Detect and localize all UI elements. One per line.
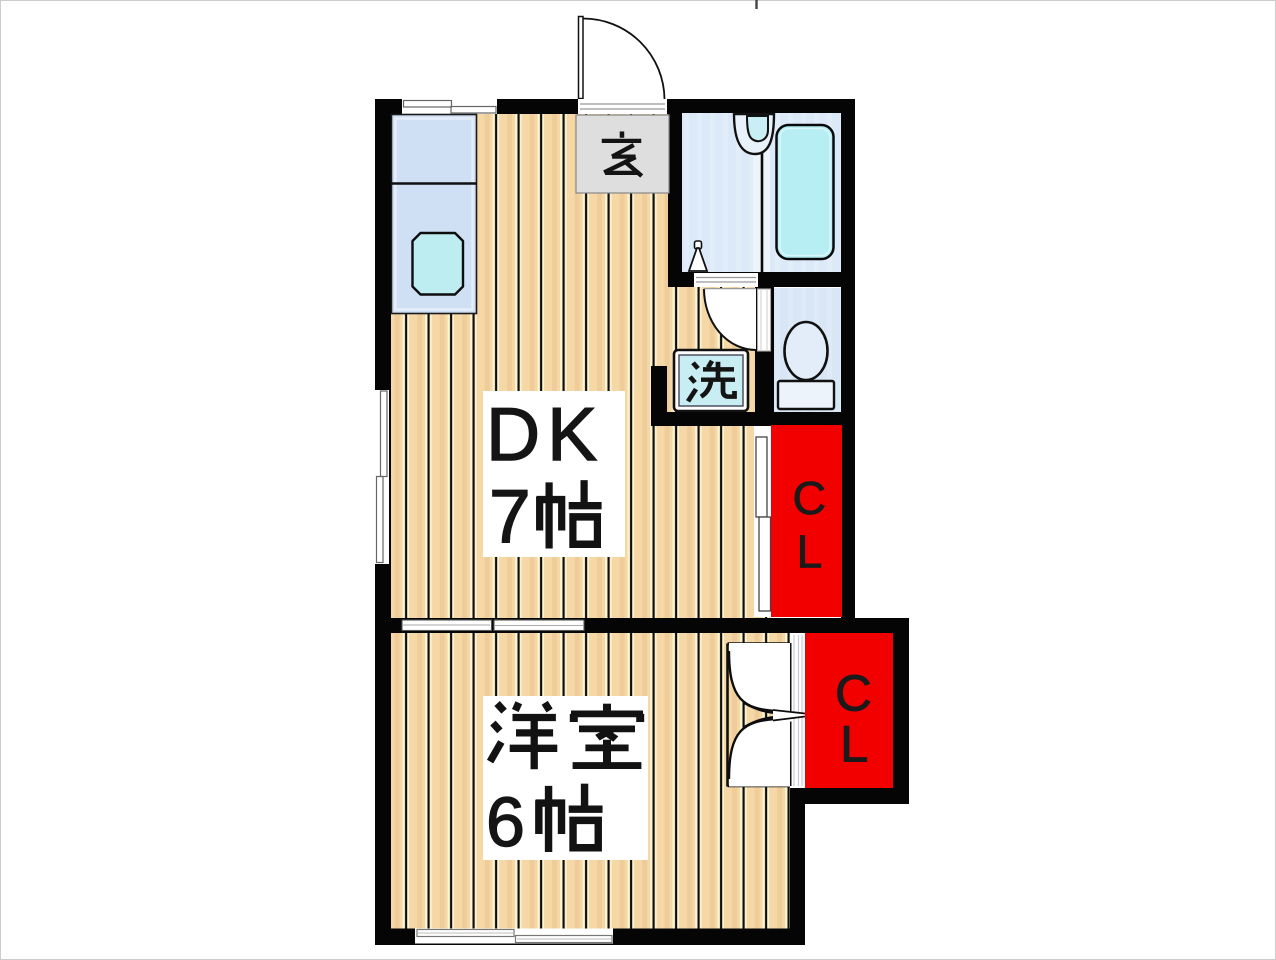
- svg-text:C: C: [793, 472, 827, 524]
- svg-text:L: L: [840, 716, 868, 773]
- svg-text:DK: DK: [486, 392, 604, 476]
- svg-text:6: 6: [486, 783, 525, 861]
- svg-text:7: 7: [489, 474, 531, 558]
- svg-text:C: C: [835, 665, 872, 722]
- svg-text:L: L: [797, 526, 823, 578]
